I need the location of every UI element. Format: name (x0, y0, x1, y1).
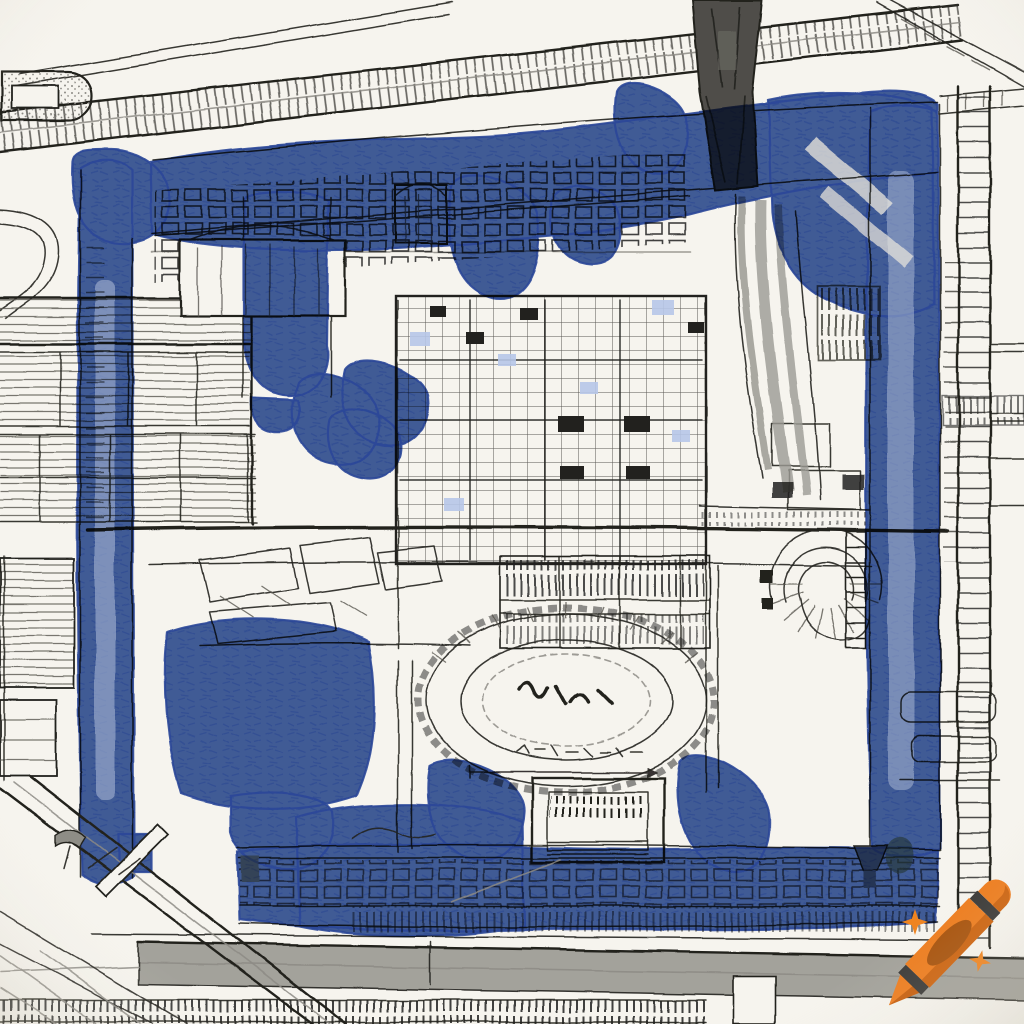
plan-drawing (0, 0, 1024, 1024)
site-plan-sketch (0, 0, 1024, 1024)
central-city-grid (396, 296, 706, 564)
